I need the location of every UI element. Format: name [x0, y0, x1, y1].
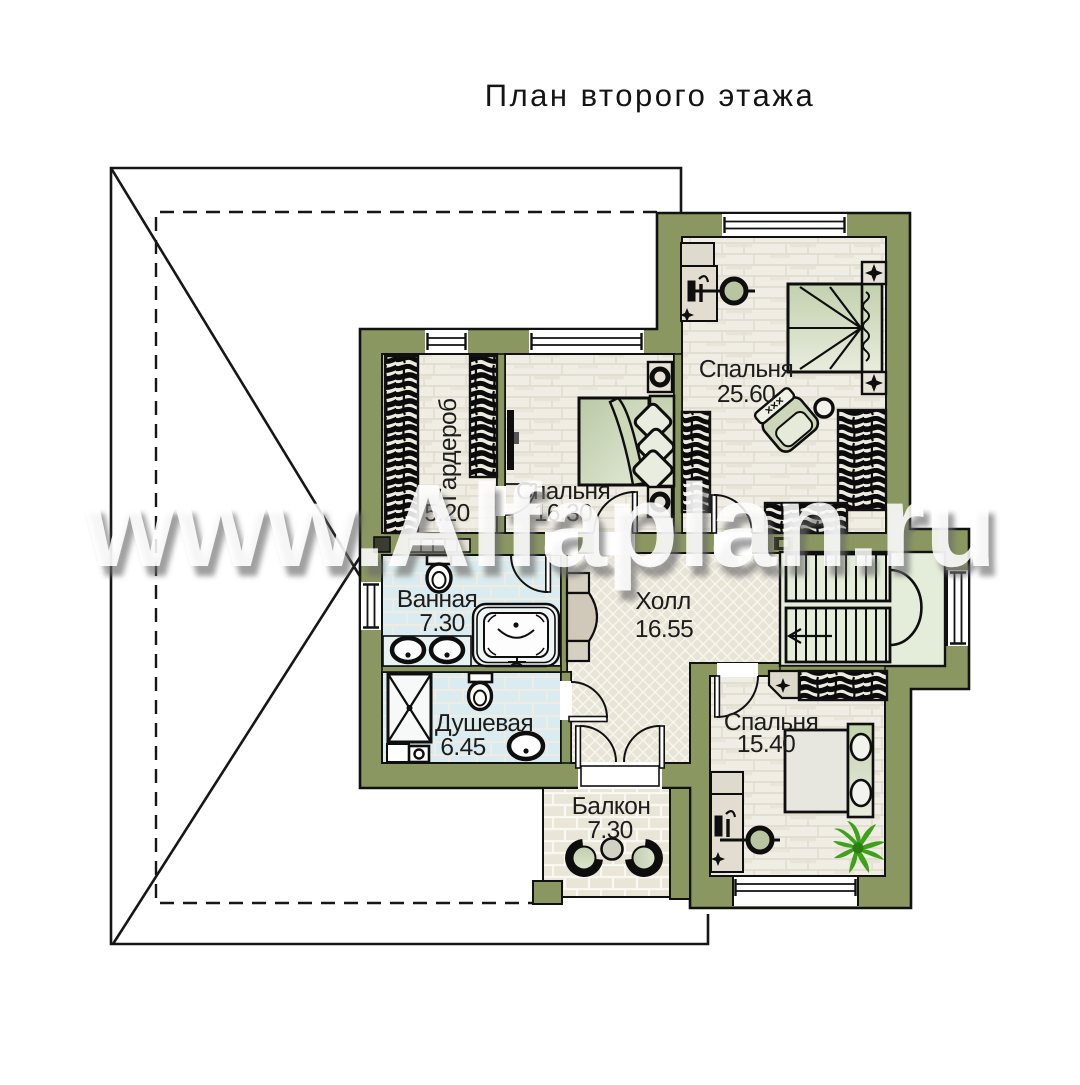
svg-text:15.40: 15.40: [737, 731, 795, 758]
svg-text:www.Alfaplan.ru: www.Alfaplan.ru: [83, 460, 997, 592]
svg-text:6.45: 6.45: [440, 734, 485, 761]
svg-text:Балкон: Балкон: [572, 793, 651, 820]
svg-text:16.55: 16.55: [635, 616, 693, 643]
svg-text:Спальня: Спальня: [699, 356, 793, 383]
svg-text:Душевая: Душевая: [435, 710, 533, 737]
svg-text:7.30: 7.30: [419, 610, 464, 637]
svg-text:План второго этажа: План второго этажа: [485, 78, 815, 113]
svg-text:Холл: Холл: [635, 588, 690, 615]
svg-text:25.60: 25.60: [717, 381, 775, 408]
svg-text:7.30: 7.30: [587, 817, 632, 844]
